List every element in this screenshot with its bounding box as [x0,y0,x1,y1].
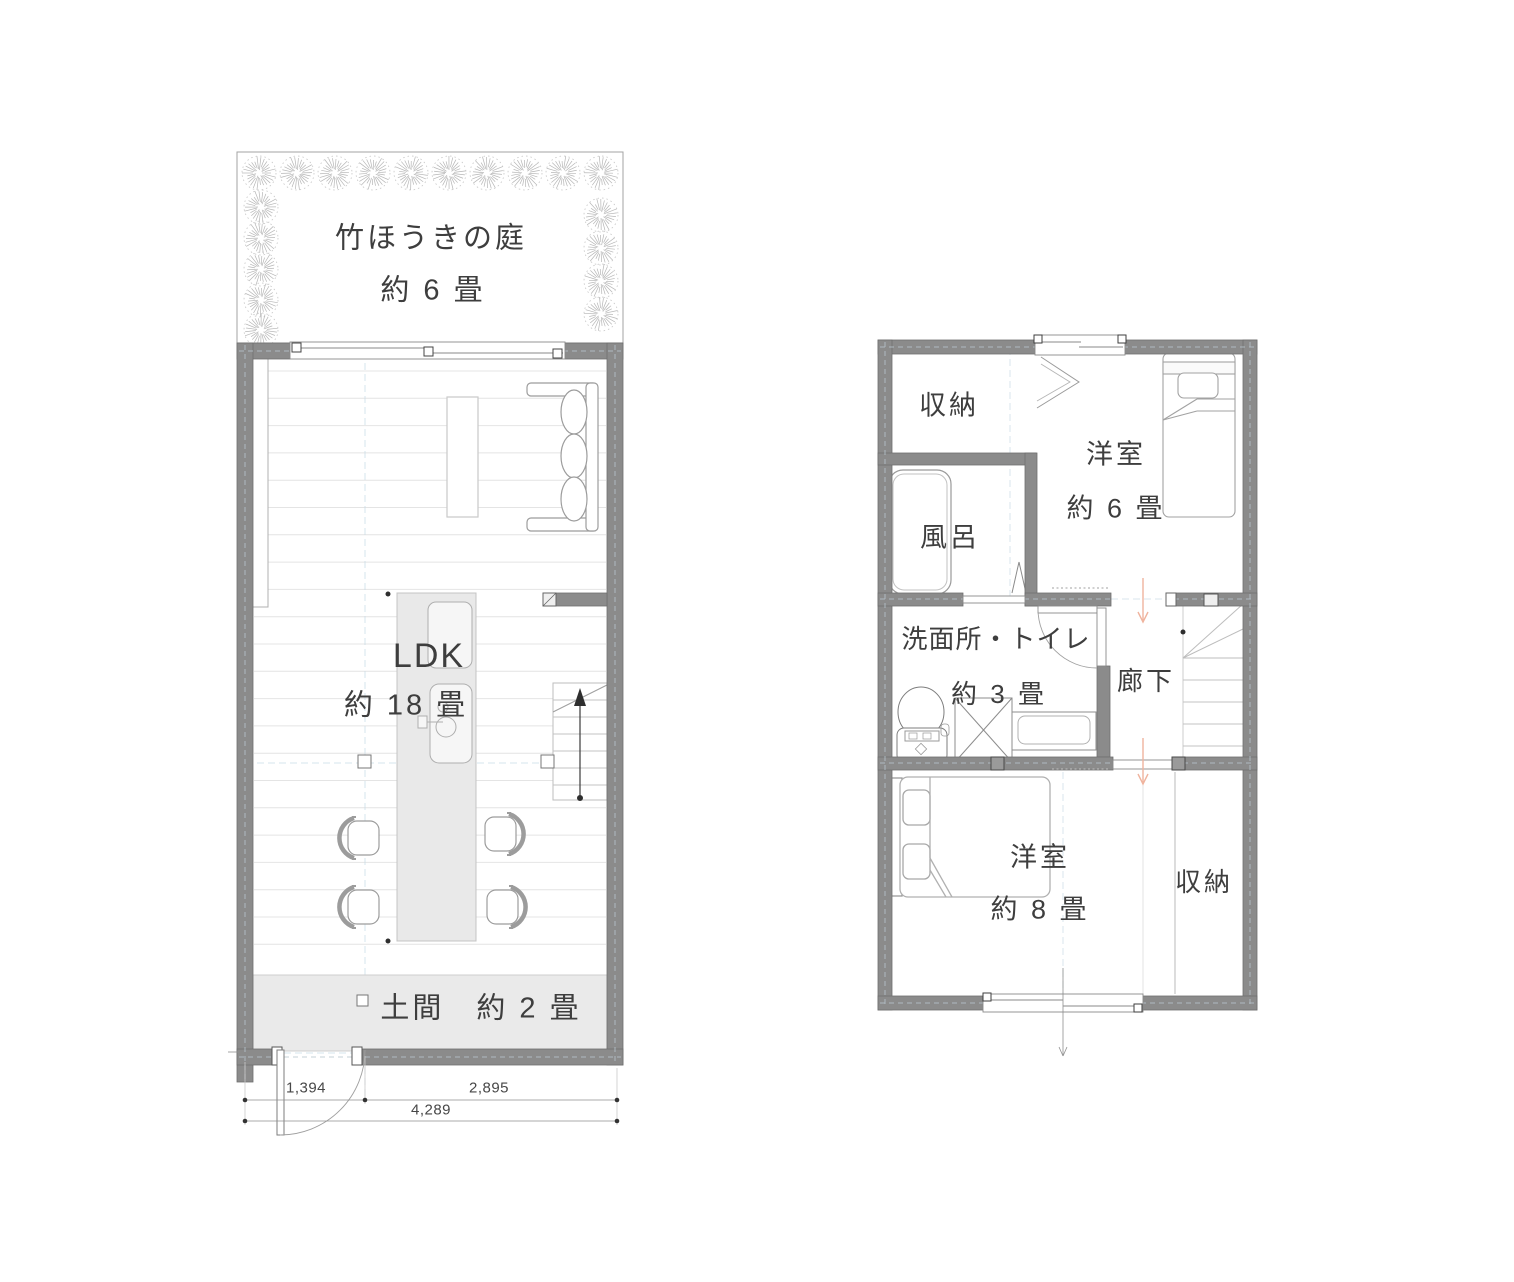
doma-label: 土間 約 2 畳 [380,995,581,1024]
washroom-size: 約 3 畳 [951,681,1047,707]
ldk-size-label: 約 18 畳 [344,692,468,721]
staircase-1f [553,683,609,801]
dining-chair [339,886,379,928]
left-wall-ledge [252,355,268,607]
sliding-door-bath [963,596,1025,603]
dining-chair [487,886,526,928]
storage-top-label: 収納 [919,393,979,420]
pillow [903,790,930,825]
window-2f-top [1034,335,1126,355]
dining-chair [485,813,524,855]
double-bed [890,777,1050,897]
pillow [1178,373,1218,398]
wash-basin [1012,712,1096,750]
sofa [527,383,598,531]
dining-chair [339,817,379,859]
pillow [903,844,930,879]
closet-folding-door [1037,357,1079,408]
bath-door [1012,562,1026,593]
toilet-icon [897,687,949,762]
washroom-label: 洗面所・トイレ [901,626,1090,652]
garden-size-label: 約 6 畳 [380,277,485,306]
sofa-cushion [561,477,587,521]
sofa-cushion [561,434,587,478]
hallway-label: 廊下 [1117,668,1175,694]
staircase-2f [1181,594,1244,757]
bedroom-large-label: 洋室 [1010,845,1070,872]
dimension-left: 1,394 [286,1081,326,1096]
living-table [447,397,478,517]
dimension-total: 4,289 [411,1103,451,1118]
bath-label: 風呂 [920,525,980,552]
storage-bottom-label: 収納 [1175,869,1233,895]
garden-name-label: 竹ほうきの庭 [335,225,527,254]
door-leaf [277,1050,284,1135]
single-bed [1163,353,1235,517]
second-floor-plan [878,335,1257,1056]
bedroom-small-size: 約 6 畳 [1066,496,1165,523]
door-leaf [1038,606,1097,613]
ldk-label: LDK [393,639,465,673]
garden-window [290,342,565,359]
floor-plan-page: 竹ほうきの庭 約 6 畳 LDK 約 18 畳 土間 約 2 畳 1,394 2… [0,0,1514,1282]
bedroom-small-label: 洋室 [1086,442,1146,469]
door-jamb [1097,608,1106,666]
window-2f-bottom [983,968,1143,1056]
floor-plan-drawing [0,0,1514,1282]
dimension-right: 2,895 [469,1081,509,1096]
sofa-cushion [561,390,587,434]
bedroom-large-size: 約 8 畳 [990,897,1089,924]
